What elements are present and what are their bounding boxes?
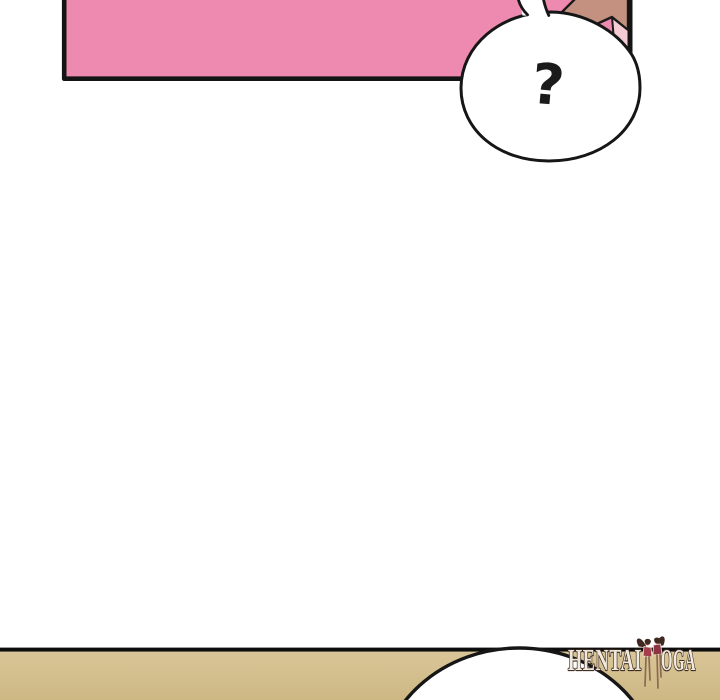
watermark-right-figure-body [653,644,662,655]
watermark-text-left: HENTAI [568,642,642,677]
comic-artwork: ? HENTAI OGA [0,0,720,700]
watermark-left-figure-body [643,647,652,658]
comic-page: ? HENTAI OGA [0,0,720,700]
watermark-text-right: OGA [661,642,696,677]
question-mark-text: ? [529,52,567,120]
